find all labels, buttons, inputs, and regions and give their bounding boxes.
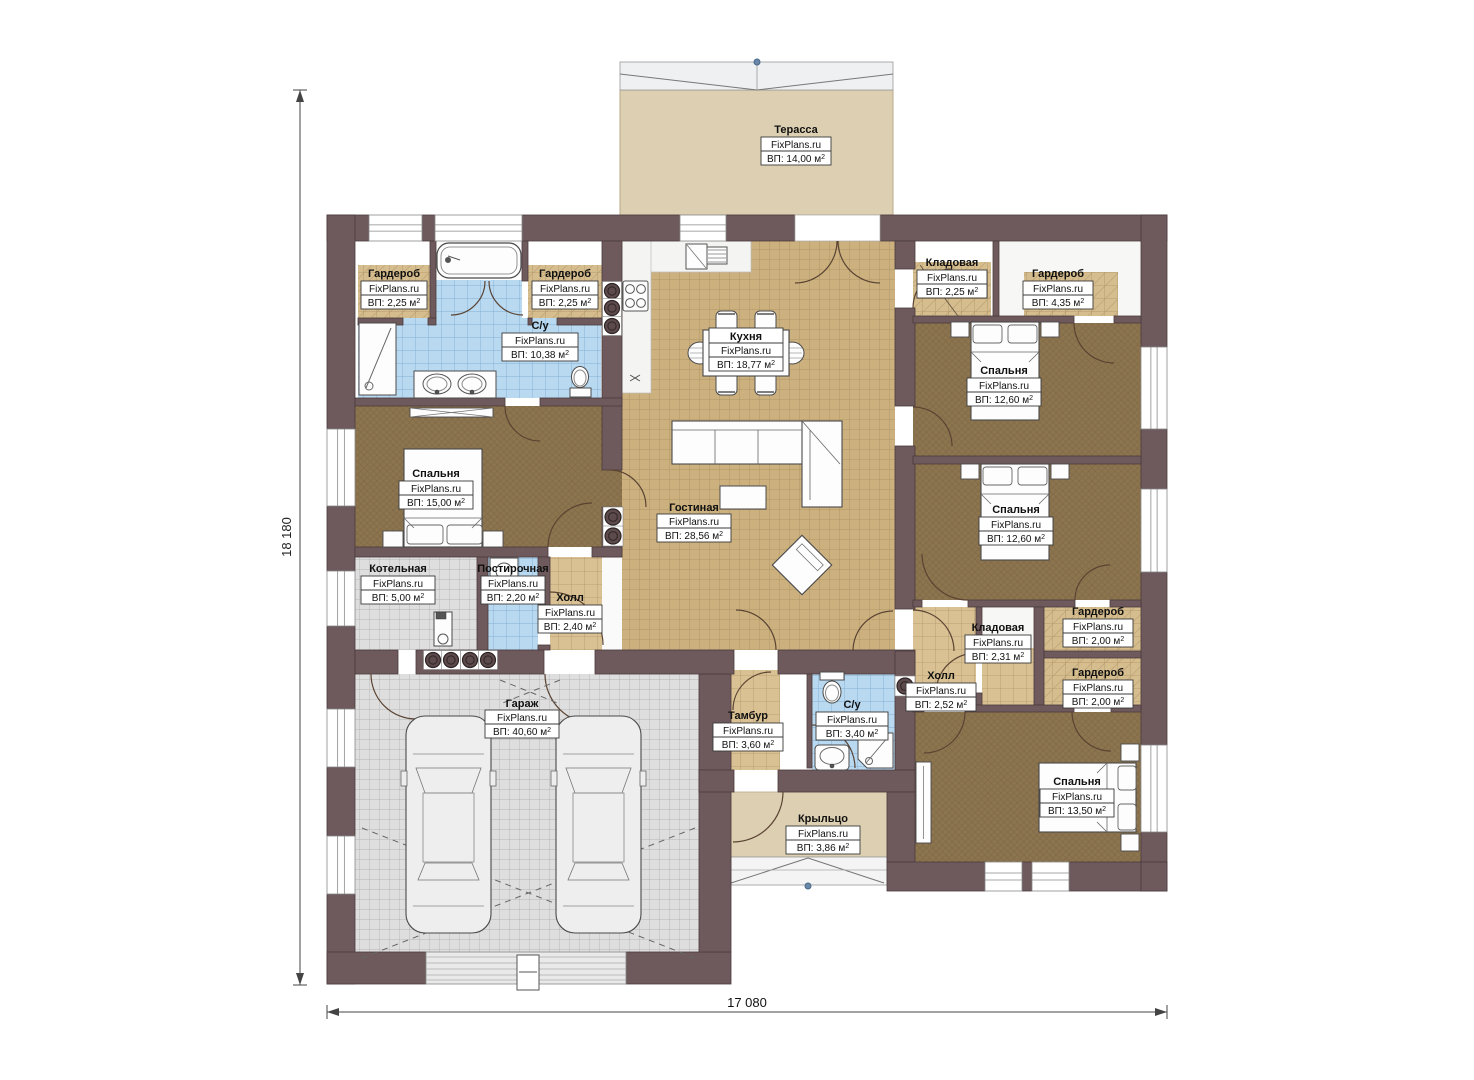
svg-text:Котельная: Котельная bbox=[369, 563, 427, 575]
svg-text:Гараж: Гараж bbox=[506, 698, 539, 710]
svg-text:Гардероб: Гардероб bbox=[368, 268, 420, 280]
svg-text:FixPlans.ru: FixPlans.ru bbox=[411, 484, 461, 495]
svg-text:ВП: 2,52 м2: ВП: 2,52 м2 bbox=[915, 700, 968, 711]
svg-text:FixPlans.ru: FixPlans.ru bbox=[991, 520, 1041, 531]
svg-text:ВП: 10,38 м2: ВП: 10,38 м2 bbox=[511, 350, 569, 361]
svg-text:FixPlans.ru: FixPlans.ru bbox=[973, 638, 1023, 649]
svg-text:FixPlans.ru: FixPlans.ru bbox=[369, 284, 419, 295]
svg-text:Кладовая: Кладовая bbox=[972, 622, 1025, 634]
svg-text:ВП: 2,00 м2: ВП: 2,00 м2 bbox=[1072, 697, 1125, 708]
svg-text:ВП: 2,31 м2: ВП: 2,31 м2 bbox=[972, 652, 1025, 663]
svg-text:ВП: 14,00 м2: ВП: 14,00 м2 bbox=[767, 154, 825, 165]
svg-text:ВП: 3,40 м2: ВП: 3,40 м2 bbox=[826, 729, 879, 740]
svg-text:ВП: 2,00 м2: ВП: 2,00 м2 bbox=[1072, 636, 1125, 647]
svg-text:ВП: 2,25 м2: ВП: 2,25 м2 bbox=[539, 298, 592, 309]
svg-text:FixPlans.ru: FixPlans.ru bbox=[723, 726, 773, 737]
svg-text:FixPlans.ru: FixPlans.ru bbox=[545, 608, 595, 619]
svg-text:ВП: 2,25 м2: ВП: 2,25 м2 bbox=[926, 287, 979, 298]
svg-text:FixPlans.ru: FixPlans.ru bbox=[1073, 622, 1123, 633]
svg-text:ВП: 2,25 м2: ВП: 2,25 м2 bbox=[368, 298, 421, 309]
svg-text:Спальня: Спальня bbox=[980, 365, 1028, 377]
svg-text:Постирочная: Постирочная bbox=[477, 563, 548, 575]
svg-text:FixPlans.ru: FixPlans.ru bbox=[721, 346, 771, 357]
svg-text:ВП: 18,77 м2: ВП: 18,77 м2 bbox=[717, 360, 775, 371]
svg-text:FixPlans.ru: FixPlans.ru bbox=[373, 579, 423, 590]
svg-text:ВП: 12,60 м2: ВП: 12,60 м2 bbox=[987, 534, 1045, 545]
svg-text:С/у: С/у bbox=[843, 699, 861, 711]
svg-text:С/у: С/у bbox=[531, 320, 549, 332]
svg-text:Гардероб: Гардероб bbox=[1072, 667, 1124, 679]
svg-text:FixPlans.ru: FixPlans.ru bbox=[798, 829, 848, 840]
svg-text:Холл: Холл bbox=[927, 670, 955, 682]
svg-text:Терасса: Терасса bbox=[774, 124, 818, 136]
svg-text:Крыльцо: Крыльцо bbox=[798, 813, 848, 825]
svg-text:FixPlans.ru: FixPlans.ru bbox=[497, 713, 547, 724]
svg-text:FixPlans.ru: FixPlans.ru bbox=[488, 579, 538, 590]
svg-text:FixPlans.ru: FixPlans.ru bbox=[669, 517, 719, 528]
svg-text:Гардероб: Гардероб bbox=[1032, 268, 1084, 280]
svg-text:FixPlans.ru: FixPlans.ru bbox=[771, 140, 821, 151]
svg-text:FixPlans.ru: FixPlans.ru bbox=[1033, 284, 1083, 295]
svg-text:Гардероб: Гардероб bbox=[1072, 606, 1124, 618]
svg-text:ВП: 40,60 м2: ВП: 40,60 м2 bbox=[493, 727, 551, 738]
svg-text:FixPlans.ru: FixPlans.ru bbox=[979, 381, 1029, 392]
svg-text:FixPlans.ru: FixPlans.ru bbox=[927, 273, 977, 284]
svg-text:ВП: 15,00 м2: ВП: 15,00 м2 bbox=[407, 498, 465, 509]
svg-text:ВП: 2,40 м2: ВП: 2,40 м2 bbox=[544, 622, 597, 633]
svg-text:FixPlans.ru: FixPlans.ru bbox=[1073, 683, 1123, 694]
svg-text:Гардероб: Гардероб bbox=[539, 268, 591, 280]
svg-text:Тамбур: Тамбур bbox=[728, 710, 768, 722]
svg-text:ВП: 13,50 м2: ВП: 13,50 м2 bbox=[1048, 806, 1106, 817]
svg-text:ВП: 28,56 м2: ВП: 28,56 м2 bbox=[665, 531, 723, 542]
svg-text:ВП: 5,00 м2: ВП: 5,00 м2 bbox=[372, 593, 425, 604]
svg-text:Холл: Холл bbox=[556, 592, 584, 604]
svg-text:Кладовая: Кладовая bbox=[926, 257, 979, 269]
svg-text:ВП: 3,86 м2: ВП: 3,86 м2 bbox=[797, 843, 850, 854]
svg-text:ВП: 2,20 м2: ВП: 2,20 м2 bbox=[487, 593, 540, 604]
svg-text:FixPlans.ru: FixPlans.ru bbox=[1052, 792, 1102, 803]
svg-text:Спальня: Спальня bbox=[992, 504, 1040, 516]
svg-text:Спальня: Спальня bbox=[1053, 776, 1101, 788]
svg-text:Кухня: Кухня bbox=[730, 331, 762, 343]
svg-text:FixPlans.ru: FixPlans.ru bbox=[515, 336, 565, 347]
svg-text:ВП: 12,60 м2: ВП: 12,60 м2 bbox=[975, 395, 1033, 406]
svg-text:Спальня: Спальня bbox=[412, 468, 460, 480]
svg-text:FixPlans.ru: FixPlans.ru bbox=[827, 715, 877, 726]
svg-text:18 180: 18 180 bbox=[279, 517, 294, 557]
svg-text:ВП: 4,35 м2: ВП: 4,35 м2 bbox=[1032, 298, 1085, 309]
svg-text:FixPlans.ru: FixPlans.ru bbox=[540, 284, 590, 295]
svg-text:FixPlans.ru: FixPlans.ru bbox=[916, 686, 966, 697]
svg-text:17 080: 17 080 bbox=[727, 995, 767, 1010]
svg-text:Гостиная: Гостиная bbox=[669, 502, 719, 514]
svg-text:ВП: 3,60 м2: ВП: 3,60 м2 bbox=[722, 740, 775, 751]
